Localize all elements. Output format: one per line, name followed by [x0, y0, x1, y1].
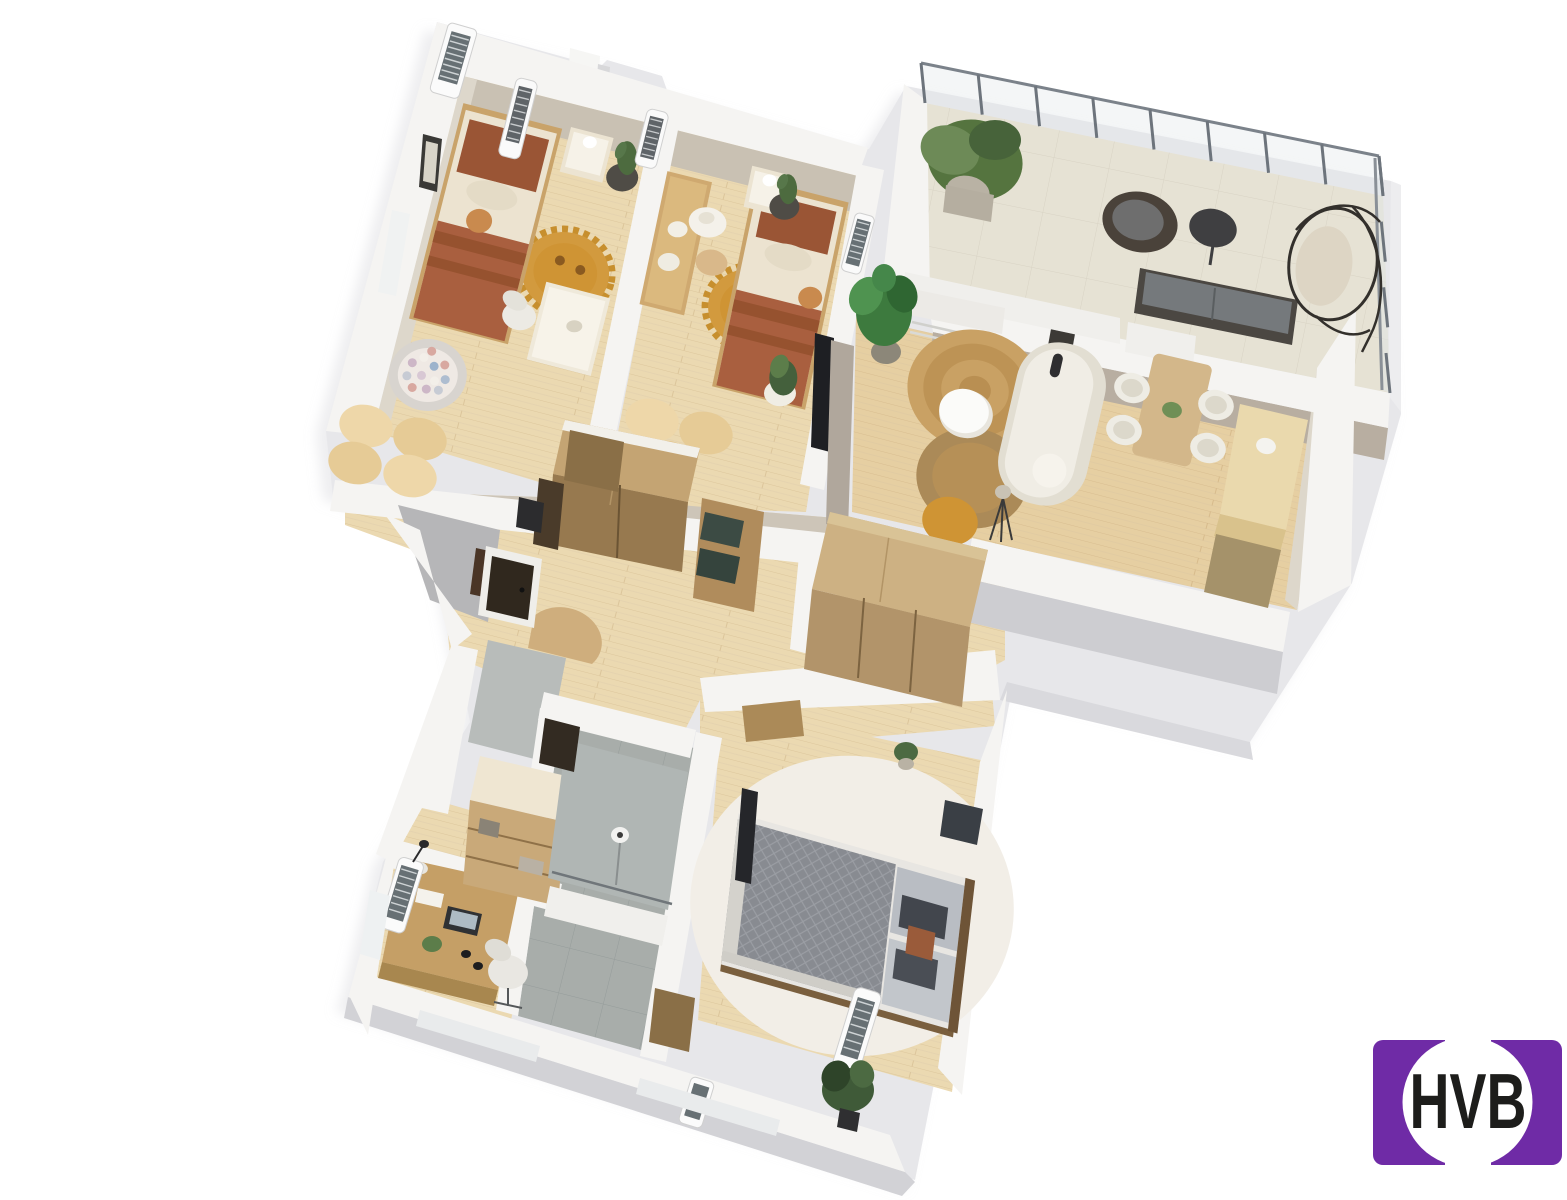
svg-text:HVB: HVB — [1410, 1059, 1527, 1145]
